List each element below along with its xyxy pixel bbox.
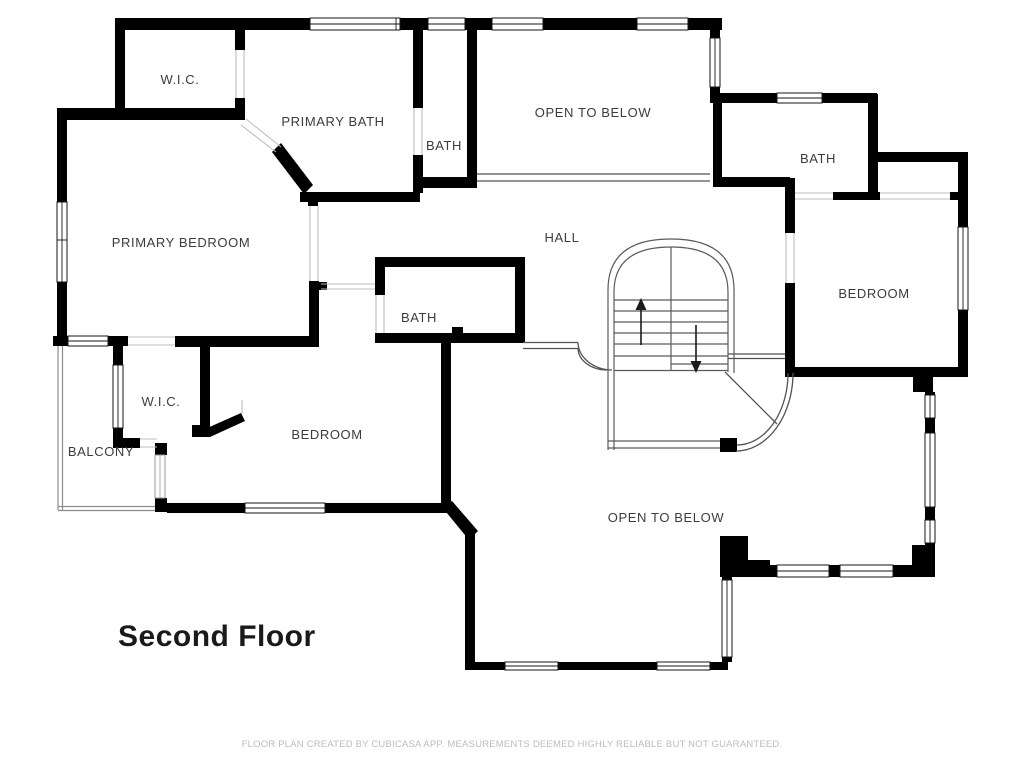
window — [840, 565, 893, 577]
window — [428, 18, 465, 30]
window — [492, 18, 543, 30]
window — [925, 395, 935, 418]
footer-disclaimer: FLOOR PLAN CREATED BY CUBICASA APP. MEAS… — [242, 739, 783, 750]
room-label-hall: HALL — [545, 230, 580, 245]
room-label-bath-center: BATH — [401, 310, 437, 325]
room-label-balcony: BALCONY — [68, 444, 134, 459]
window — [113, 365, 123, 428]
room-label-open-to-below-bottom: OPEN TO BELOW — [608, 510, 725, 525]
window — [722, 580, 732, 657]
window — [777, 565, 829, 577]
room-label-bath-top-right: BATH — [800, 151, 836, 166]
room-label-bedroom-bottom: BEDROOM — [291, 427, 362, 442]
window — [925, 520, 935, 543]
window — [925, 433, 935, 507]
window — [505, 662, 558, 670]
window — [777, 93, 822, 103]
window — [657, 662, 710, 670]
floor-plan-canvas: W.I.C. PRIMARY BATH BATH OPEN TO BELOW B… — [0, 0, 1024, 768]
floor-title: Second Floor — [118, 620, 316, 653]
window — [68, 336, 108, 346]
room-label-primary-bath: PRIMARY BATH — [281, 114, 384, 129]
room-label-bedroom-right: BEDROOM — [838, 286, 909, 301]
window — [57, 202, 67, 282]
window — [245, 503, 325, 513]
room-label-primary-bedroom: PRIMARY BEDROOM — [112, 235, 251, 250]
room-label-wic-upper: W.I.C. — [161, 72, 200, 87]
window — [310, 18, 400, 30]
window — [710, 38, 720, 87]
room-label-bath-top-center: BATH — [426, 138, 462, 153]
window — [958, 227, 968, 310]
window — [637, 18, 688, 30]
balcony-glass-panel — [155, 455, 165, 498]
room-label-open-to-below-top: OPEN TO BELOW — [535, 105, 652, 120]
room-label-wic-lower: W.I.C. — [142, 394, 181, 409]
